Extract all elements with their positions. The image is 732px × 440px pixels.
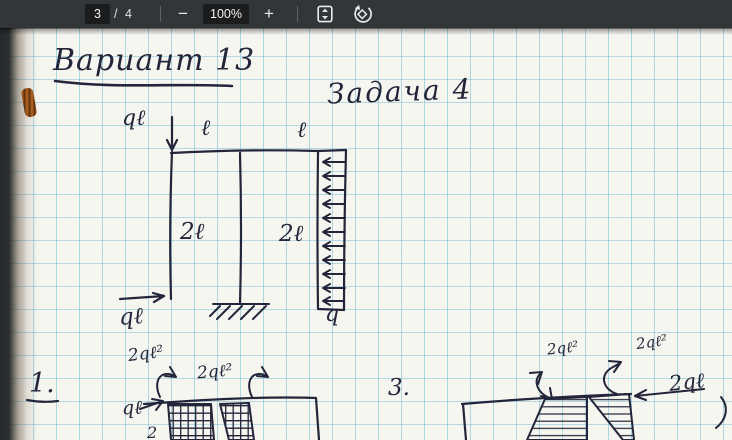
frame-height-left-label: 2ℓ [180, 221, 204, 244]
moment-arrow [604, 361, 621, 394]
variant-title: Вариант 13 [53, 46, 255, 76]
stray-stroke [716, 397, 726, 428]
frame-bottom-force-label: qℓ [118, 305, 144, 330]
diagram1-moment-left-label: 2qℓ² [127, 344, 164, 365]
fixed-support-hatching [210, 304, 269, 319]
diagram3-number: 3. [388, 377, 410, 400]
rotate-button[interactable] [346, 0, 378, 28]
fit-to-page-icon [315, 4, 335, 24]
page-number-input[interactable]: 3 [85, 4, 110, 24]
diagram1-force-label: qℓ [122, 398, 143, 418]
page-count-label: / 4 [114, 0, 134, 28]
toolbar-separator [160, 6, 161, 22]
rotate-counterclockwise-icon [352, 4, 372, 24]
zoom-out-button[interactable]: − [168, 0, 198, 28]
task-label: Задача 4 [327, 75, 473, 108]
diagram3-moment-right-label: 2qℓ² [635, 333, 668, 352]
frame-span-left-label: ℓ [201, 118, 210, 140]
frame-span-right-label: ℓ [297, 120, 306, 142]
pdf-toolbar: 3 / 4 − 100% + [0, 0, 732, 28]
distributed-load-arrows [323, 158, 345, 305]
number-1-underline [27, 400, 58, 402]
title-underline [55, 81, 232, 86]
moment-arrow [249, 367, 268, 397]
moment-arrow [530, 372, 552, 399]
moment-arrow [157, 367, 176, 397]
pdf-viewer-window: Вариант 13 Задача 4 qℓ ℓ ℓ 2ℓ 2ℓ q qℓ 1.… [0, 0, 732, 440]
distributed-load-label: q [325, 304, 339, 326]
top-force-arrow [167, 117, 177, 150]
zoom-level-input[interactable]: 100% [203, 4, 249, 24]
moment-diagram-1 [27, 367, 319, 440]
frame-height-right-label: 2ℓ [279, 223, 303, 246]
diagram1-number: 1. [29, 370, 55, 397]
diagram3-force-label: 2qℓ [668, 370, 706, 395]
zoom-in-button[interactable]: + [254, 0, 284, 28]
bottom-force-arrow [120, 293, 164, 302]
fit-to-page-button[interactable] [309, 0, 341, 28]
frame-structure-drawing [120, 117, 346, 319]
frame-top-force-label: qℓ [122, 108, 145, 130]
diagram1-moment-right-label: 2qℓ² [196, 362, 233, 382]
diagram3-moment-left-label: 2qℓ² [546, 339, 579, 357]
diagram1-partial-label: 2 [147, 425, 157, 440]
toolbar-separator [297, 6, 298, 22]
